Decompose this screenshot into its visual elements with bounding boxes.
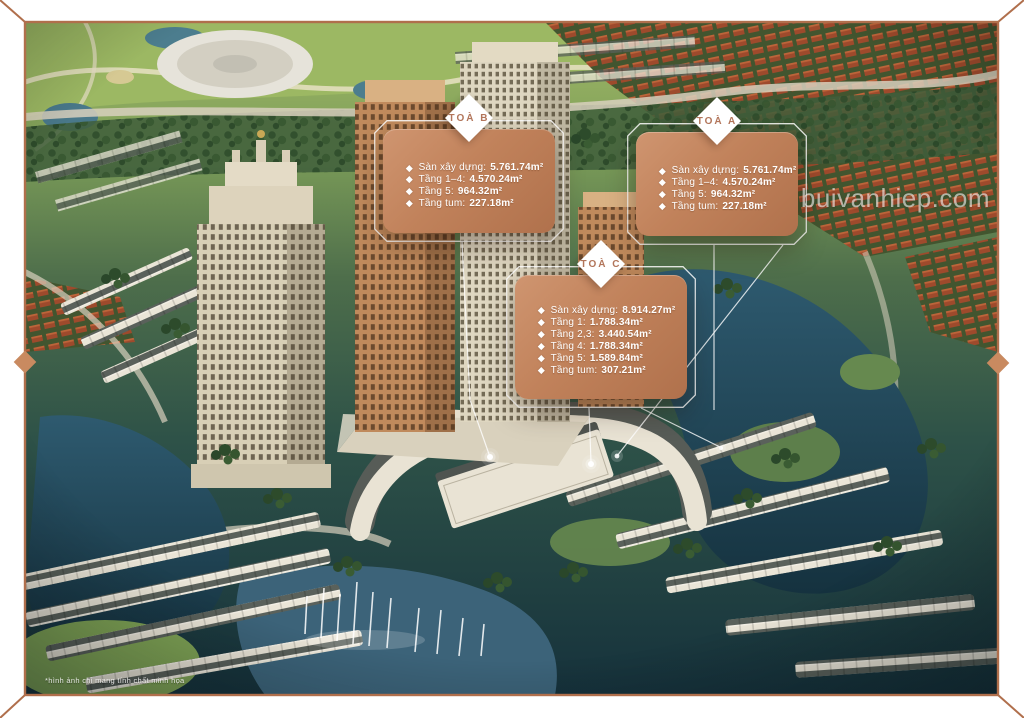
callout-panel: Sàn xây dựng:5.761.74m² Tầng 1–4:4.570.2… bbox=[383, 129, 555, 233]
spec-label: Sàn xây dựng: bbox=[672, 165, 740, 176]
spec-label: Tầng tum: bbox=[551, 365, 598, 376]
title-diamond: TOÀ C bbox=[577, 240, 625, 288]
callout-toa-c: Sàn xây dựng:8.914.27m² Tầng 1:1.788.34m… bbox=[506, 266, 696, 408]
spec-value: 1.788.34m² bbox=[590, 341, 643, 352]
diamond-bullet-icon bbox=[406, 176, 412, 182]
callout-toa-b: Sàn xây dựng:5.761.74m² Tầng 1–4:4.570.2… bbox=[374, 120, 564, 242]
diamond-bullet-icon bbox=[406, 165, 412, 171]
callout-toa-a: Sàn xây dựng:5.761.74m² Tầng 1–4:4.570.2… bbox=[627, 123, 807, 245]
spec-row: Tầng 1–4:4.570.24m² bbox=[407, 174, 555, 186]
spec-label: Tầng 2,3: bbox=[551, 329, 595, 340]
spec-label: Tầng 1–4: bbox=[419, 174, 466, 185]
disclaimer-note: *hình ảnh chỉ mang tính chất minh họa bbox=[45, 676, 185, 685]
spec-label: Tầng tum: bbox=[419, 198, 466, 209]
spec-value: 1.788.34m² bbox=[590, 317, 643, 328]
diamond-bullet-icon bbox=[659, 168, 665, 174]
spec-label: Tầng 5: bbox=[672, 189, 707, 200]
diamond-bullet-icon bbox=[406, 200, 412, 206]
spec-value: 4.570.24m² bbox=[469, 174, 522, 185]
spec-value: 5.761.74m² bbox=[743, 165, 796, 176]
spec-value: 8.914.27m² bbox=[622, 305, 675, 316]
spec-row: Tầng tum:227.18m² bbox=[407, 197, 555, 209]
spec-row: Tầng 5:1.589.84m² bbox=[539, 352, 687, 364]
spec-value: 1.589.84m² bbox=[590, 353, 643, 364]
spec-label: Tầng 1: bbox=[551, 317, 586, 328]
spec-label: Tầng tum: bbox=[672, 201, 719, 212]
diamond-bullet-icon bbox=[538, 355, 544, 361]
diamond-bullet-icon bbox=[659, 179, 665, 185]
spec-row: Sàn xây dựng:5.761.74m² bbox=[407, 162, 555, 174]
spec-row: Tầng tum:227.18m² bbox=[660, 200, 798, 212]
diamond-bullet-icon bbox=[538, 319, 544, 325]
callout-title: TOÀ B bbox=[425, 94, 513, 142]
spec-value: 5.761.74m² bbox=[490, 162, 543, 173]
spec-value: 307.21m² bbox=[601, 365, 645, 376]
diamond-bullet-icon bbox=[538, 331, 544, 337]
spec-label: Tầng 5: bbox=[419, 186, 454, 197]
diamond-bullet-icon bbox=[538, 367, 544, 373]
spec-value: 3.440.54m² bbox=[599, 329, 652, 340]
spec-row: Tầng 1–4:4.570.24m² bbox=[660, 177, 798, 189]
spec-label: Sàn xây dựng: bbox=[419, 162, 487, 173]
spec-row: Tầng 2,3:3.440.54m² bbox=[539, 328, 687, 340]
spec-row: Tầng 1:1.788.34m² bbox=[539, 316, 687, 328]
spec-label: Tầng 5: bbox=[551, 353, 586, 364]
aerial-render: Sàn xây dựng:5.761.74m² Tầng 1–4:4.570.2… bbox=[25, 22, 998, 695]
callout-panel: Sàn xây dựng:5.761.74m² Tầng 1–4:4.570.2… bbox=[636, 132, 798, 236]
spec-value: 964.32m² bbox=[458, 186, 502, 197]
diamond-bullet-icon bbox=[406, 188, 412, 194]
spec-value: 227.18m² bbox=[469, 198, 513, 209]
spec-label: Tầng 4: bbox=[551, 341, 586, 352]
spec-value: 964.32m² bbox=[711, 189, 755, 200]
spec-row: Tầng 5:964.32m² bbox=[660, 189, 798, 201]
spec-row: Tầng 4:1.788.34m² bbox=[539, 340, 687, 352]
spec-value: 227.18m² bbox=[722, 201, 766, 212]
spec-row: Sàn xây dựng:5.761.74m² bbox=[660, 165, 798, 177]
title-diamond: TOÀ A bbox=[693, 97, 741, 145]
spec-value: 4.570.24m² bbox=[722, 177, 775, 188]
poster-page: { "page": { "watermark": "buivanhiep.com… bbox=[0, 0, 1024, 718]
callout-title: TOÀ C bbox=[557, 240, 645, 288]
title-diamond: TOÀ B bbox=[445, 94, 493, 142]
diamond-bullet-icon bbox=[659, 191, 665, 197]
watermark: buivanhiep.com bbox=[801, 183, 990, 214]
diamond-bullet-icon bbox=[538, 307, 544, 313]
spec-row: Tầng tum:307.21m² bbox=[539, 364, 687, 376]
spec-row: Sàn xây dựng:8.914.27m² bbox=[539, 304, 687, 316]
spec-label: Tầng 1–4: bbox=[672, 177, 719, 188]
callout-panel: Sàn xây dựng:8.914.27m² Tầng 1:1.788.34m… bbox=[515, 275, 687, 399]
callout-title: TOÀ A bbox=[673, 97, 761, 145]
diamond-bullet-icon bbox=[538, 343, 544, 349]
diamond-bullet-icon bbox=[659, 203, 665, 209]
spec-row: Tầng 5:964.32m² bbox=[407, 186, 555, 198]
spec-label: Sàn xây dựng: bbox=[551, 305, 619, 316]
